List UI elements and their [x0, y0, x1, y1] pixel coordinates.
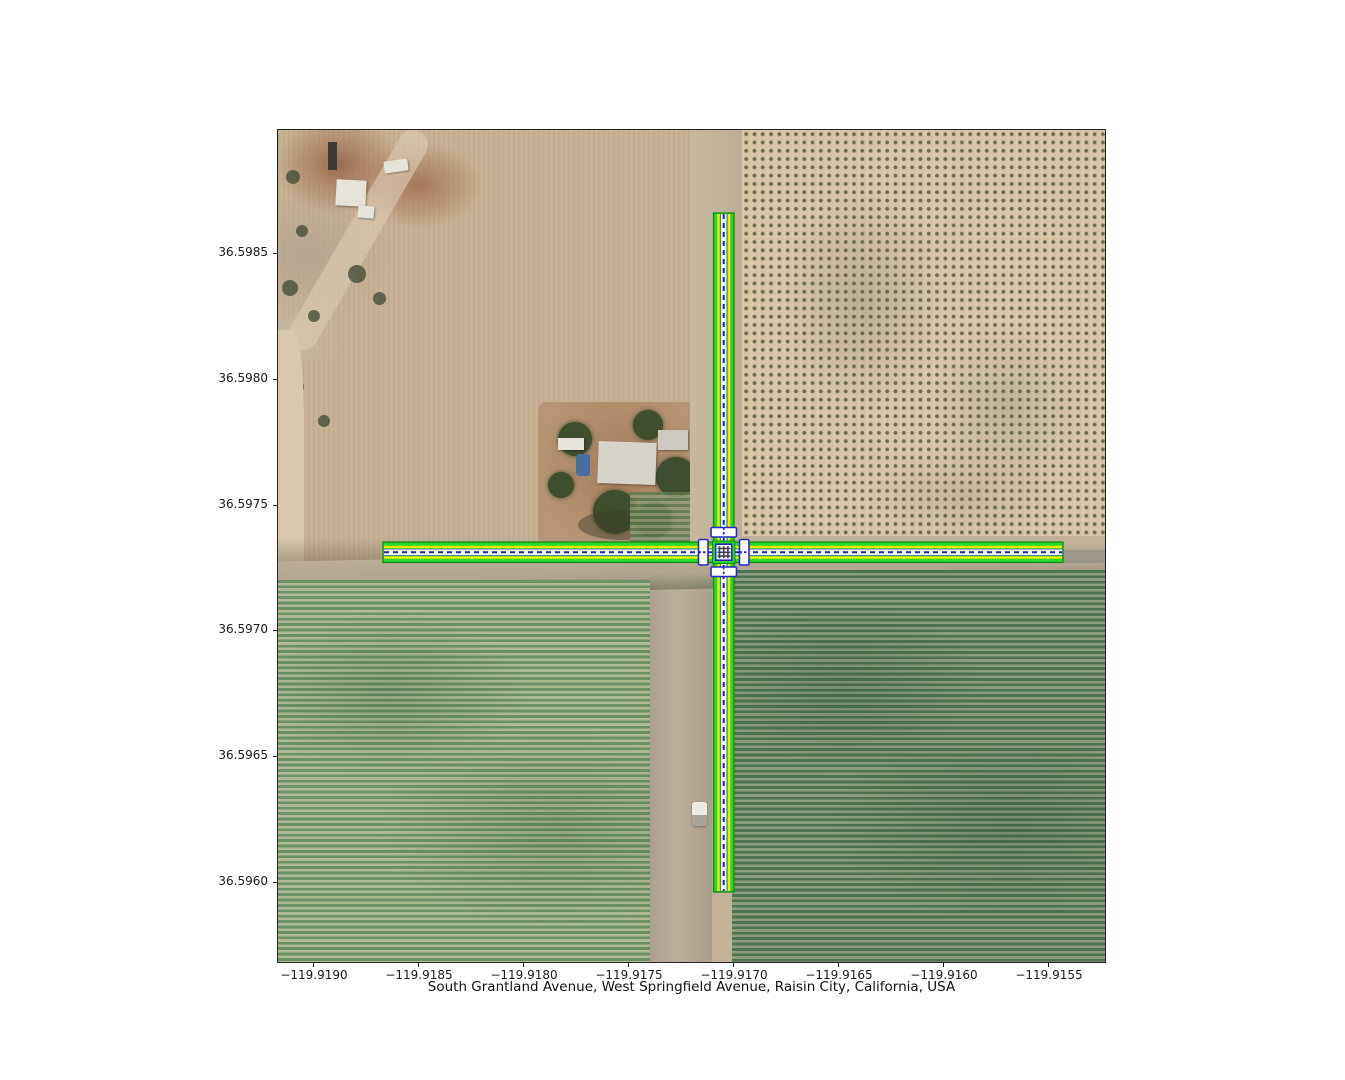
- y-tick-mark: [273, 630, 277, 631]
- intersection: [699, 528, 750, 577]
- y-tick-label: 36.5975: [150, 497, 268, 511]
- x-tick-mark: [1048, 963, 1049, 967]
- y-tick-mark: [273, 882, 277, 883]
- x-tick-mark: [523, 963, 524, 967]
- map-axes: [277, 129, 1106, 963]
- y-tick-label: 36.5980: [150, 371, 268, 385]
- y-tick-label: 36.5965: [150, 748, 268, 762]
- junction-hatch: [718, 546, 731, 558]
- matplotlib-figure-page: { "figure": { "xlabel": "South Grantland…: [0, 0, 1345, 1080]
- y-tick-mark: [273, 379, 277, 380]
- x-tick-mark: [313, 963, 314, 967]
- y-tick-label: 36.5960: [150, 874, 268, 888]
- axis-xlabel-address: South Grantland Avenue, West Springfield…: [277, 979, 1106, 995]
- figure: −119.9190 −119.9185 −119.9180 −119.9175 …: [0, 0, 1345, 1080]
- x-tick-mark: [418, 963, 419, 967]
- y-tick-mark: [273, 505, 277, 506]
- y-tick-mark: [273, 756, 277, 757]
- x-tick-mark: [733, 963, 734, 967]
- road-overlay-svg: [278, 130, 1105, 962]
- x-tick-mark: [628, 963, 629, 967]
- y-tick-label: 36.5970: [150, 622, 268, 636]
- x-tick-mark: [943, 963, 944, 967]
- x-tick-mark: [838, 963, 839, 967]
- y-tick-label: 36.5985: [150, 245, 268, 259]
- y-tick-mark: [273, 253, 277, 254]
